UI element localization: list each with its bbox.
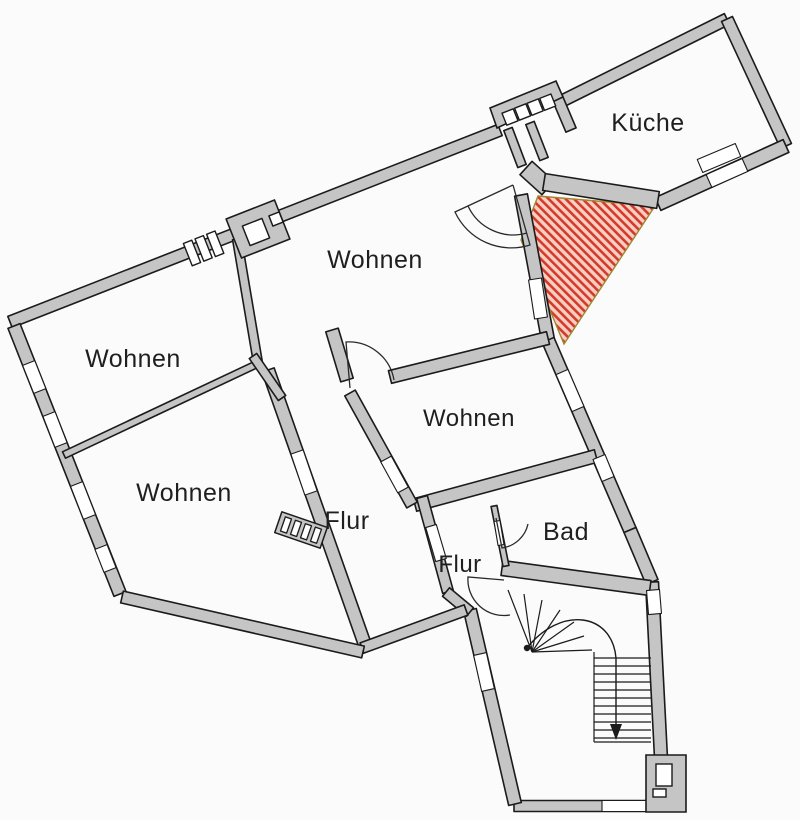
room-label-wohnen-bottom: Wohnen xyxy=(136,479,232,507)
shaft-inner-rect-small xyxy=(653,789,666,797)
room-label-wohnen-left: Wohnen xyxy=(85,345,181,373)
room-label-flur-main: Flur xyxy=(324,507,369,535)
window-gap xyxy=(647,589,662,614)
room-label-wohnen-small: Wohnen xyxy=(423,405,515,432)
room-label-wohnen-center: Wohnen xyxy=(327,246,423,274)
room-label-bad: Bad xyxy=(543,518,589,546)
shaft-block xyxy=(646,755,686,812)
floor-plan-page: Küche Wohnen Wohnen Wohnen Wohnen Flur F… xyxy=(0,0,800,820)
room-label-kueche: Küche xyxy=(611,109,684,137)
shaft-inner-rect xyxy=(656,764,672,786)
room-label-flur-small: Flur xyxy=(438,551,481,578)
window-gap xyxy=(602,801,648,812)
floor-plan-svg: Küche Wohnen Wohnen Wohnen Wohnen Flur F… xyxy=(0,0,800,820)
